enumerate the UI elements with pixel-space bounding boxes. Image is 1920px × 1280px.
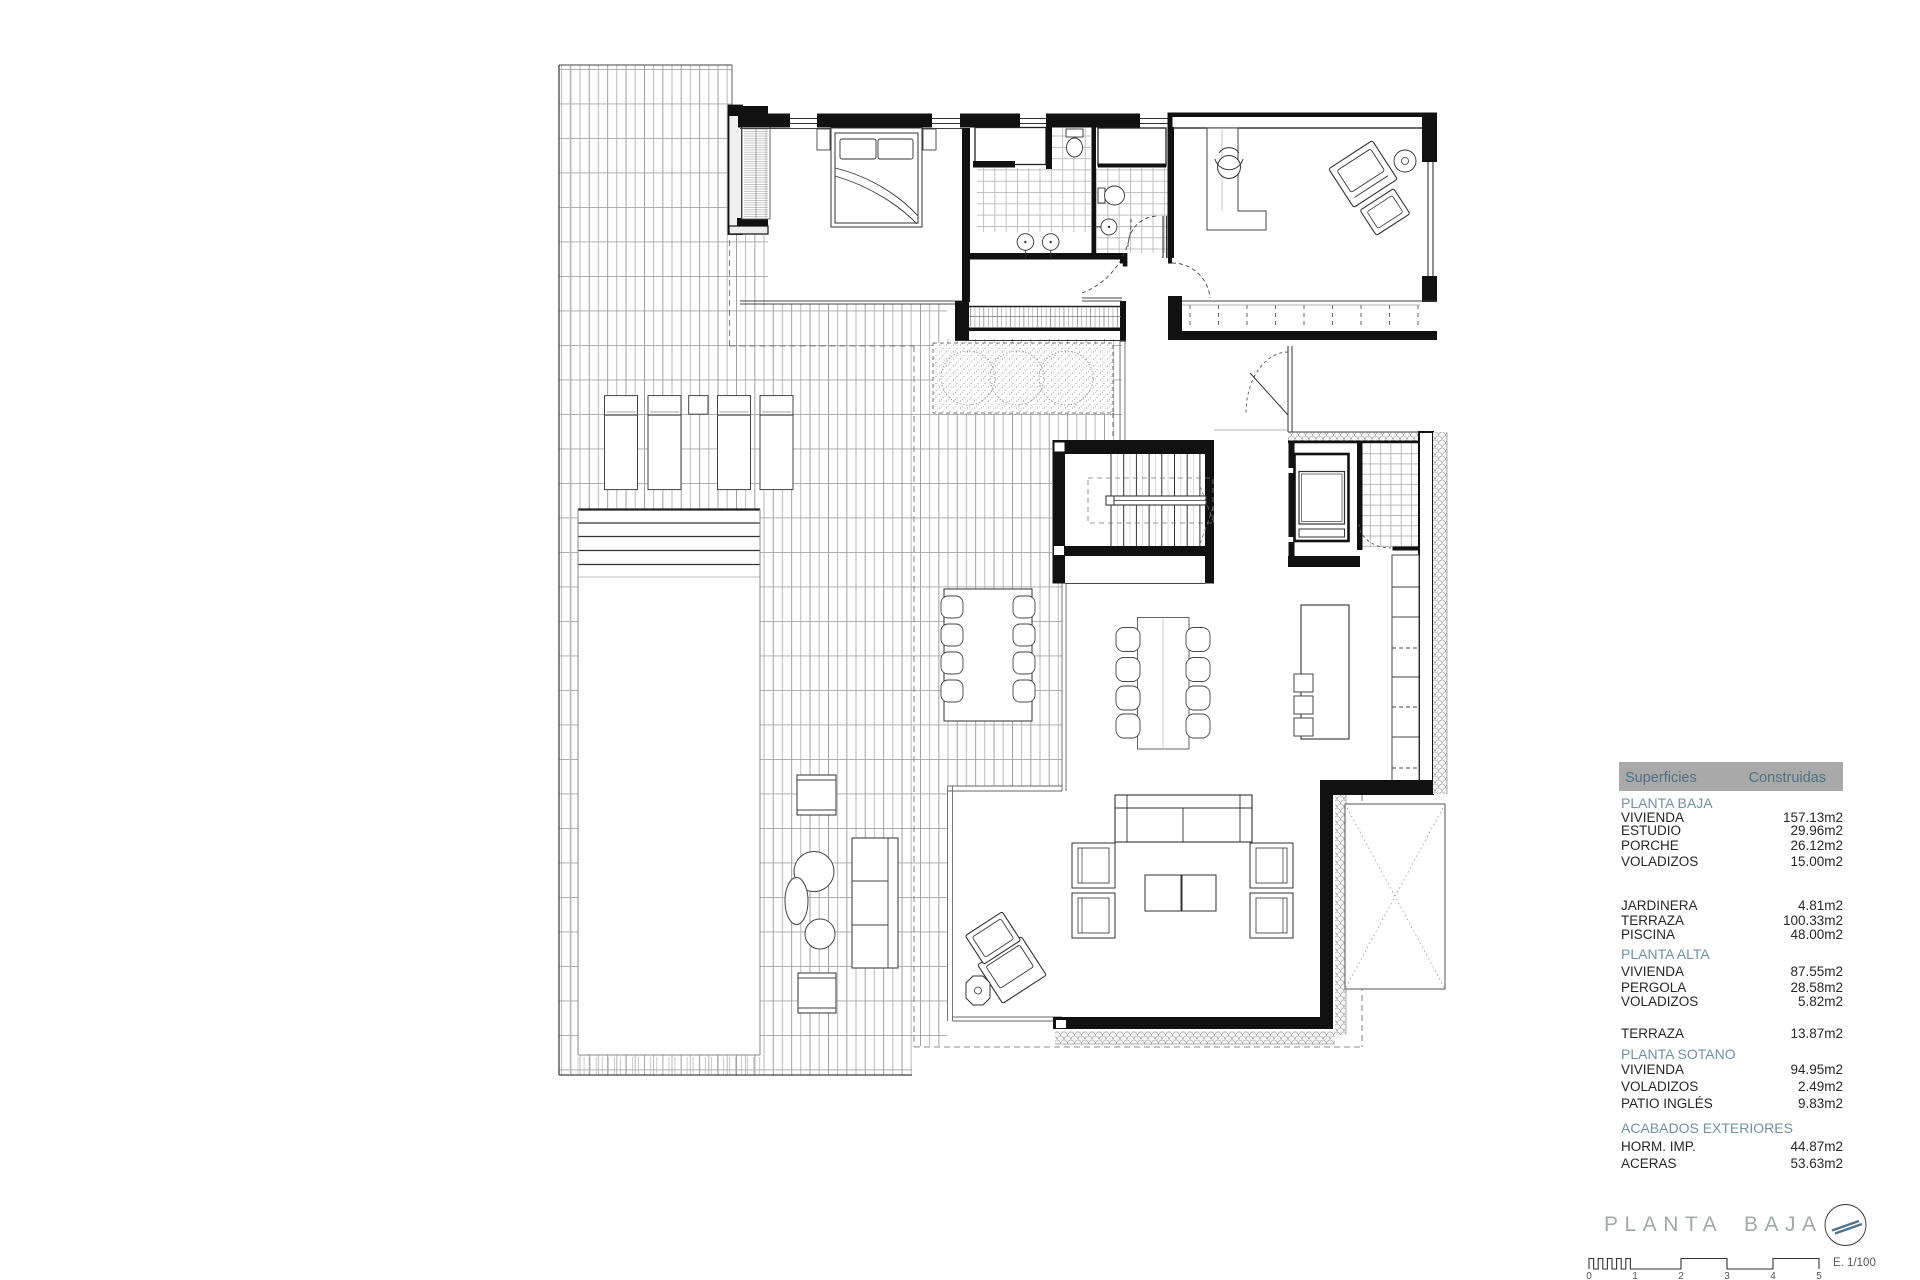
svg-text:PERGOLA: PERGOLA — [1621, 980, 1686, 995]
svg-text:15.00m2: 15.00m2 — [1790, 854, 1843, 869]
svg-text:PISCINA: PISCINA — [1621, 927, 1675, 942]
svg-text:2: 2 — [1678, 1271, 1684, 1280]
svg-text:PLANTA ALTA: PLANTA ALTA — [1621, 946, 1710, 962]
svg-text:JARDINERA: JARDINERA — [1621, 898, 1698, 913]
svg-text:BAJA: BAJA — [1744, 1213, 1823, 1236]
svg-text:TERRAZA: TERRAZA — [1621, 913, 1684, 928]
svg-text:13.87m2: 13.87m2 — [1790, 1026, 1843, 1041]
svg-text:PATIO INGLÉS: PATIO INGLÉS — [1621, 1096, 1713, 1111]
svg-text:VOLADIZOS: VOLADIZOS — [1621, 994, 1698, 1009]
svg-text:2.49m2: 2.49m2 — [1798, 1079, 1843, 1094]
svg-text:HORM. IMP.: HORM. IMP. — [1621, 1139, 1696, 1154]
svg-text:1: 1 — [1632, 1271, 1638, 1280]
svg-text:PLANTA: PLANTA — [1604, 1213, 1723, 1236]
svg-text:4: 4 — [1770, 1271, 1776, 1280]
svg-text:VOLADIZOS: VOLADIZOS — [1621, 1079, 1698, 1094]
svg-text:3: 3 — [1724, 1271, 1730, 1280]
svg-text:VIVIENDA: VIVIENDA — [1621, 964, 1684, 979]
svg-text:ESTUDIO: ESTUDIO — [1621, 823, 1681, 838]
svg-text:VOLADIZOS: VOLADIZOS — [1621, 854, 1698, 869]
svg-text:28.58m2: 28.58m2 — [1790, 980, 1843, 995]
svg-text:48.00m2: 48.00m2 — [1790, 927, 1843, 942]
svg-text:PLANTA SOTANO: PLANTA SOTANO — [1621, 1046, 1736, 1062]
svg-text:TERRAZA: TERRAZA — [1621, 1026, 1684, 1041]
svg-text:4.81m2: 4.81m2 — [1798, 898, 1843, 913]
svg-text:5.82m2: 5.82m2 — [1798, 994, 1843, 1009]
svg-text:53.63m2: 53.63m2 — [1790, 1156, 1843, 1171]
svg-text:100.33m2: 100.33m2 — [1783, 913, 1843, 928]
svg-text:E. 1/100: E. 1/100 — [1833, 1257, 1876, 1269]
svg-text:44.87m2: 44.87m2 — [1790, 1139, 1843, 1154]
svg-text:VIVIENDA: VIVIENDA — [1621, 1062, 1684, 1077]
svg-text:ACERAS: ACERAS — [1621, 1156, 1677, 1171]
svg-text:9.83m2: 9.83m2 — [1798, 1096, 1843, 1111]
svg-text:Construidas: Construidas — [1749, 770, 1826, 786]
svg-text:PORCHE: PORCHE — [1621, 838, 1679, 853]
svg-text:94.95m2: 94.95m2 — [1790, 1062, 1843, 1077]
svg-text:Superficies: Superficies — [1625, 770, 1697, 786]
svg-text:29.96m2: 29.96m2 — [1790, 823, 1843, 838]
svg-text:0: 0 — [1586, 1271, 1592, 1280]
svg-text:PLANTA BAJA: PLANTA BAJA — [1621, 795, 1713, 811]
svg-text:87.55m2: 87.55m2 — [1790, 964, 1843, 979]
svg-text:26.12m2: 26.12m2 — [1790, 838, 1843, 853]
svg-text:5: 5 — [1816, 1271, 1822, 1280]
svg-text:ACABADOS EXTERIORES: ACABADOS EXTERIORES — [1621, 1120, 1793, 1136]
